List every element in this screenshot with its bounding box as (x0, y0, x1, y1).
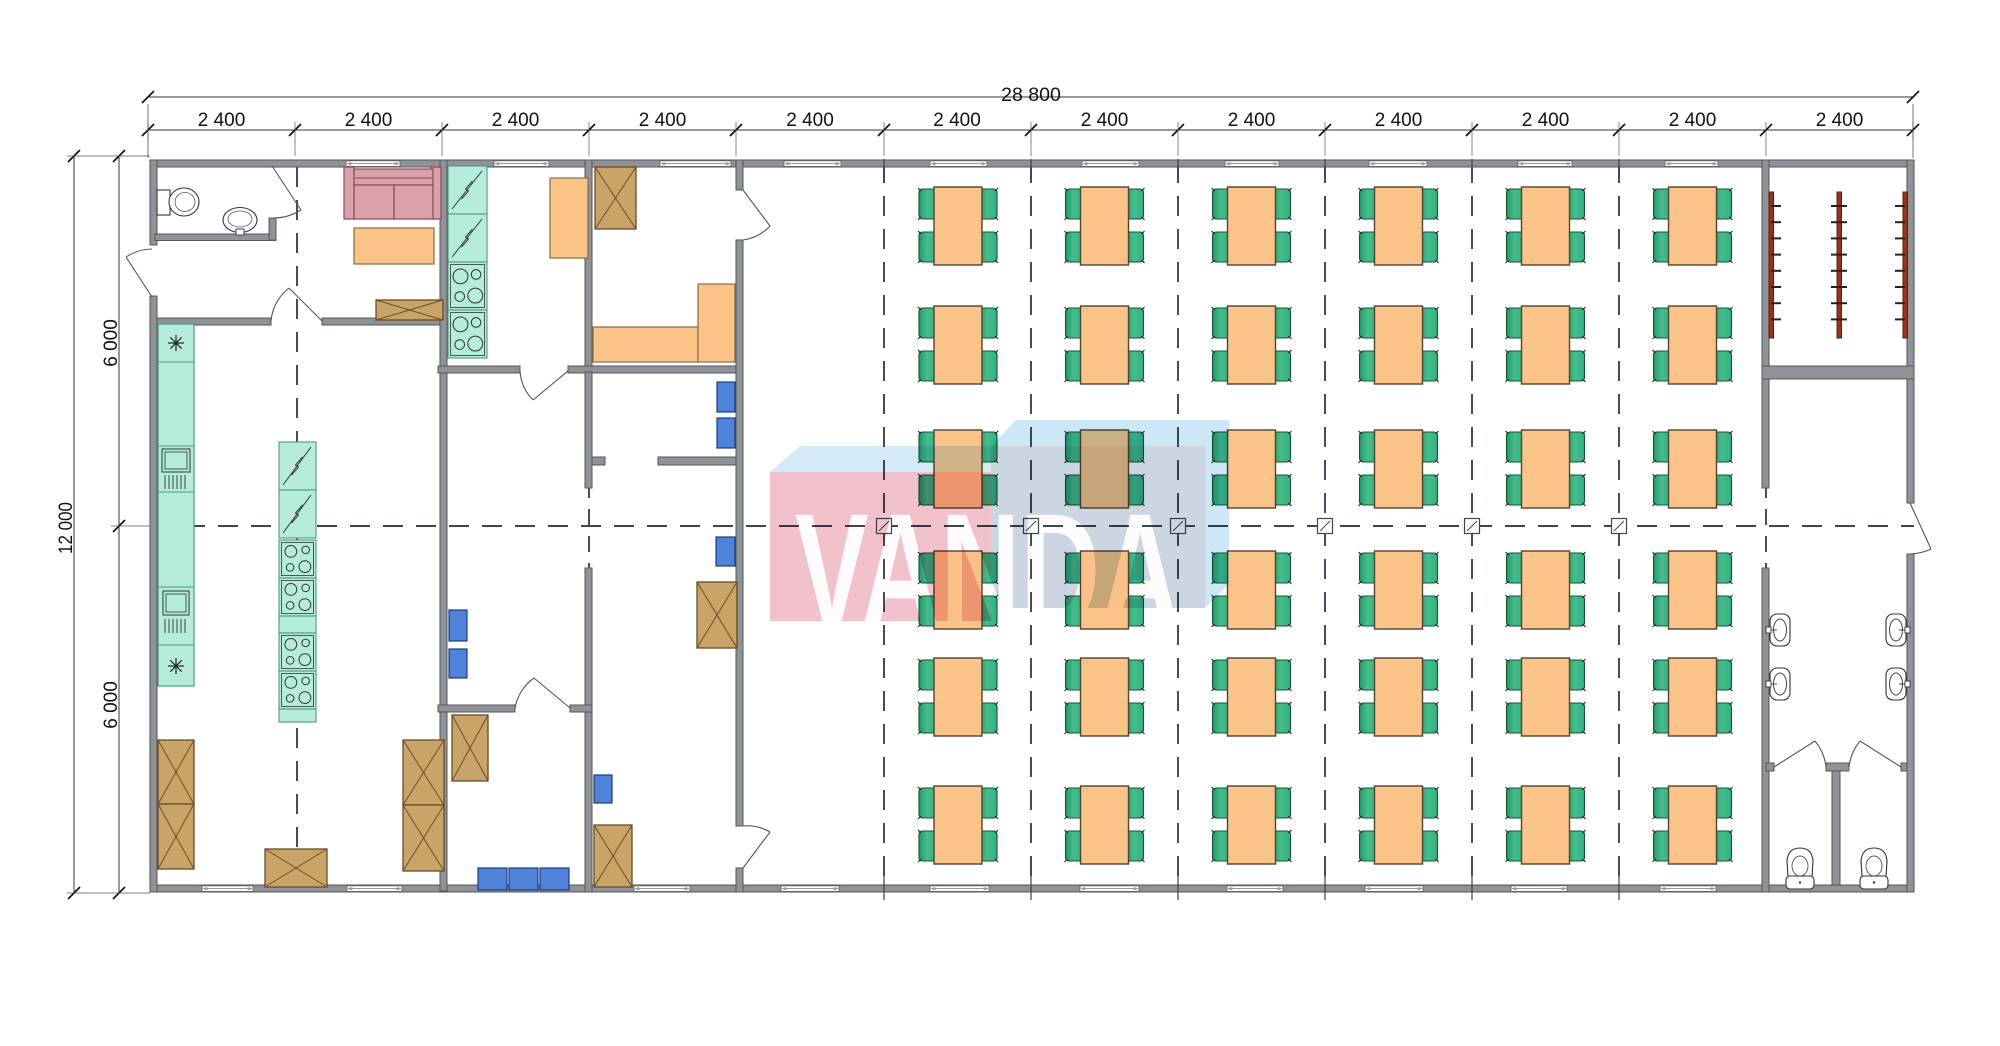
svg-text:2 400: 2 400 (198, 110, 246, 131)
svg-text:2 400: 2 400 (1816, 110, 1864, 131)
svg-text:2 400: 2 400 (1375, 110, 1423, 131)
svg-text:28 800: 28 800 (1001, 84, 1061, 106)
svg-text:2 400: 2 400 (786, 110, 834, 131)
svg-text:2 400: 2 400 (492, 110, 540, 131)
svg-text:12 000: 12 000 (56, 502, 77, 554)
svg-text:2 400: 2 400 (639, 110, 687, 131)
svg-text:2 400: 2 400 (1228, 110, 1276, 131)
svg-text:6 000: 6 000 (101, 681, 122, 729)
svg-text:2 400: 2 400 (1081, 110, 1129, 131)
svg-text:2 400: 2 400 (1522, 110, 1570, 131)
svg-text:6 000: 6 000 (101, 319, 122, 367)
svg-text:2 400: 2 400 (933, 110, 981, 131)
svg-text:2 400: 2 400 (345, 110, 393, 131)
svg-text:2 400: 2 400 (1669, 110, 1717, 131)
